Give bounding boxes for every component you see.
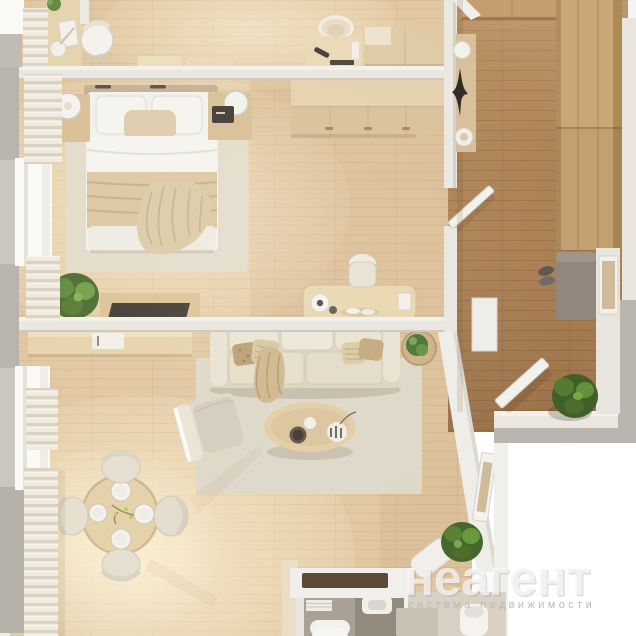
- svg-text:неагент: неагент: [404, 550, 590, 606]
- svg-text:система недвижимости: система недвижимости: [408, 599, 595, 611]
